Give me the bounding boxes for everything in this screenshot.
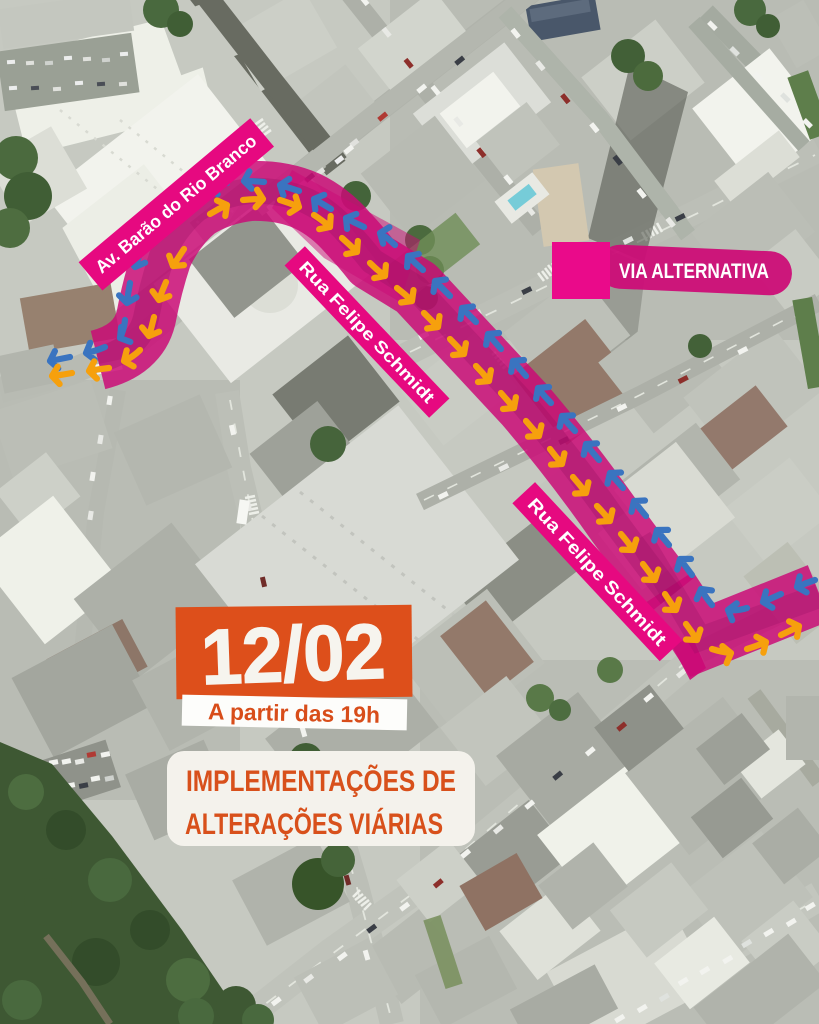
svg-text:ALTERAÇÕES VIÁRIAS: ALTERAÇÕES VIÁRIAS	[185, 807, 443, 841]
svg-text:A partir das 19h: A partir das 19h	[208, 698, 381, 728]
svg-text:VIA ALTERNATIVA: VIA ALTERNATIVA	[619, 260, 769, 283]
svg-text:IMPLEMENTAÇÕES DE: IMPLEMENTAÇÕES DE	[186, 764, 456, 798]
svg-text:12/02: 12/02	[200, 607, 387, 701]
